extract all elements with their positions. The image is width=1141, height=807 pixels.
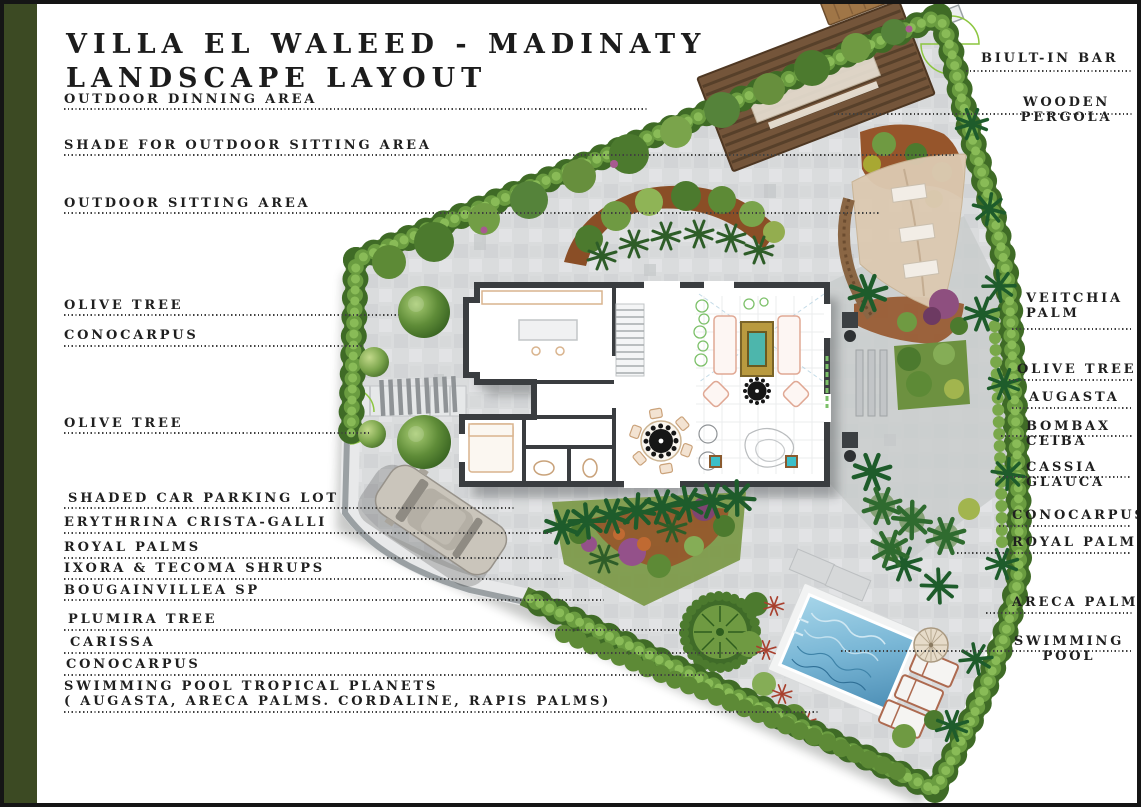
- leader-bougainvillea-sp: [64, 599, 604, 601]
- leader-olive-tree-right: [1009, 379, 1132, 381]
- label-shade-for-outdoor-sitting-area: SHADE FOR OUTDOOR SITTING AREA: [64, 138, 432, 153]
- label-wooden-pergola: WOODENPERGOLA: [999, 95, 1134, 125]
- leader-plumira-tree: [64, 629, 684, 631]
- leader-swimming-pool-tropical-planets: [64, 711, 819, 713]
- leader-conocarpus-right: [999, 525, 1132, 527]
- label-conocarpus-2: CONOCARPUS: [66, 657, 201, 672]
- label-outdoor-sitting-area: OUTDOOR SITTING AREA: [64, 196, 310, 211]
- leader-biult-in-bar: [966, 70, 1132, 72]
- label-biult-in-bar: BIULT-IN BAR: [981, 51, 1118, 66]
- label-olive-tree-2: OLIVE TREE: [64, 416, 183, 431]
- leader-shaded-car-parking-lot: [64, 507, 514, 509]
- label-areca-palms: ARECA PALMS: [1012, 595, 1141, 610]
- label-bougainvillea-sp: BOUGAINVILLEA SP: [64, 583, 260, 598]
- label-veitchia-palm: VEITCHIAPALM: [1026, 291, 1123, 321]
- label-royal-palms-right: ROYAL PALMS: [1012, 535, 1141, 550]
- leader-royal-palms-left: [64, 557, 552, 559]
- label-shaded-car-parking-lot: SHADED CAR PARKING LOT: [68, 491, 339, 506]
- label-olive-tree-right: OLIVE TREE: [1017, 362, 1136, 377]
- label-carissa: CARISSA: [70, 635, 156, 650]
- label-royal-palms-left: ROYAL PALMS: [64, 540, 201, 555]
- living-rug: [741, 322, 773, 376]
- leader-conocarpus-1: [64, 345, 364, 347]
- pool-umbrella: [914, 628, 948, 662]
- leader-olive-tree-2: [64, 432, 369, 434]
- label-augasta: AUGASTA: [1029, 390, 1120, 405]
- leader-erythrina-crista-galli: [64, 532, 552, 534]
- leader-areca-palms: [986, 612, 1132, 614]
- villa-building: [459, 281, 831, 488]
- label-cassia-glauca: CASSIAGLAUCA: [1026, 460, 1105, 490]
- leader-shade-for-outdoor-sitting-area: [64, 154, 954, 156]
- label-conocarpus-1: CONOCARPUS: [64, 328, 199, 343]
- stairs: [616, 304, 644, 376]
- label-conocarpus-right: CONOCARPUS: [1012, 508, 1141, 523]
- leader-outdoor-sitting-area: [64, 212, 879, 214]
- label-swimming-pool-tropical-planets: SWIMMING POOL TROPICAL PLANETS ( AUGASTA…: [64, 679, 611, 709]
- leader-veitchia-palm: [1012, 328, 1132, 330]
- label-bombax-ceiba: BOMBAXCEIBA: [1026, 419, 1111, 449]
- leader-conocarpus-2: [64, 674, 704, 676]
- label-outdoor-dinning-area: OUTDOOR DINNING AREA: [64, 92, 317, 107]
- leader-carissa: [64, 652, 764, 654]
- label-ixora-tecoma-shrups: IXORA & TECOMA SHRUPS: [64, 561, 325, 576]
- leader-augasta: [1012, 407, 1132, 409]
- leader-olive-tree-1: [64, 314, 399, 316]
- ixora-shrub: [637, 537, 651, 551]
- leader-royal-palms-right: [957, 552, 1132, 554]
- parking-shade: [379, 376, 457, 416]
- label-olive-tree-1: OLIVE TREE: [64, 298, 183, 313]
- leader-ixora-tecoma-shrups: [64, 578, 564, 580]
- label-erythrina-crista-galli: ERYTHRINA CRISTA-GALLI: [64, 515, 327, 530]
- label-plumira-tree: PLUMIRA TREE: [68, 612, 217, 627]
- label-swimming-pool: SWIMMINGPOOL: [1004, 634, 1134, 664]
- leader-outdoor-dinning-area: [64, 108, 649, 110]
- landscape-layout-sheet: VILLA EL WALEED - MADINATY LANDSCAPE LAY…: [0, 0, 1141, 807]
